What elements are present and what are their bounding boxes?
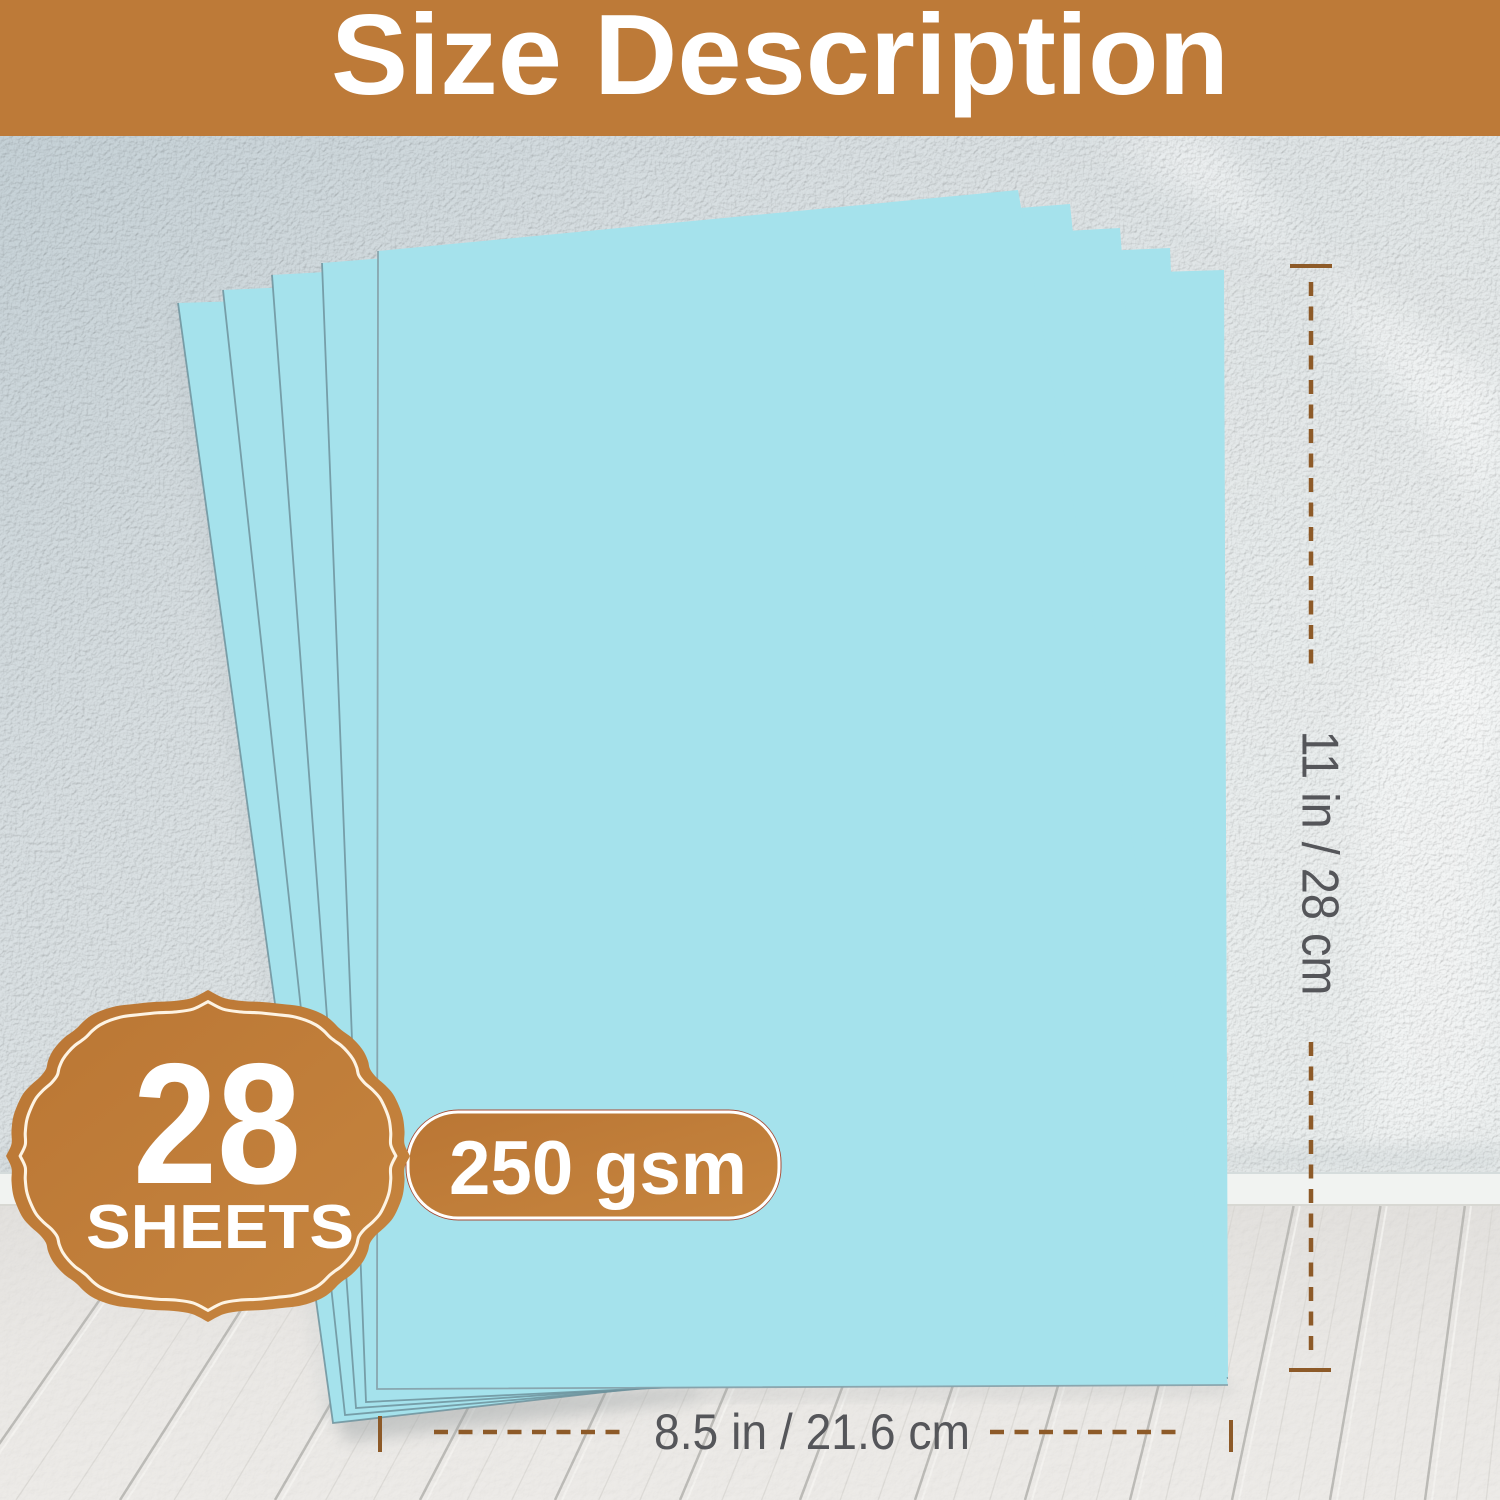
svg-text:SHEETS: SHEETS — [86, 1193, 354, 1262]
svg-text:250 gsm: 250 gsm — [449, 1126, 747, 1211]
svg-text:11 in / 28 cm: 11 in / 28 cm — [1290, 731, 1348, 996]
svg-text:28: 28 — [133, 1028, 301, 1220]
svg-text:8.5 in / 21.6 cm: 8.5 in / 21.6 cm — [654, 1404, 970, 1460]
svg-text:Size Description: Size Description — [331, 0, 1229, 119]
